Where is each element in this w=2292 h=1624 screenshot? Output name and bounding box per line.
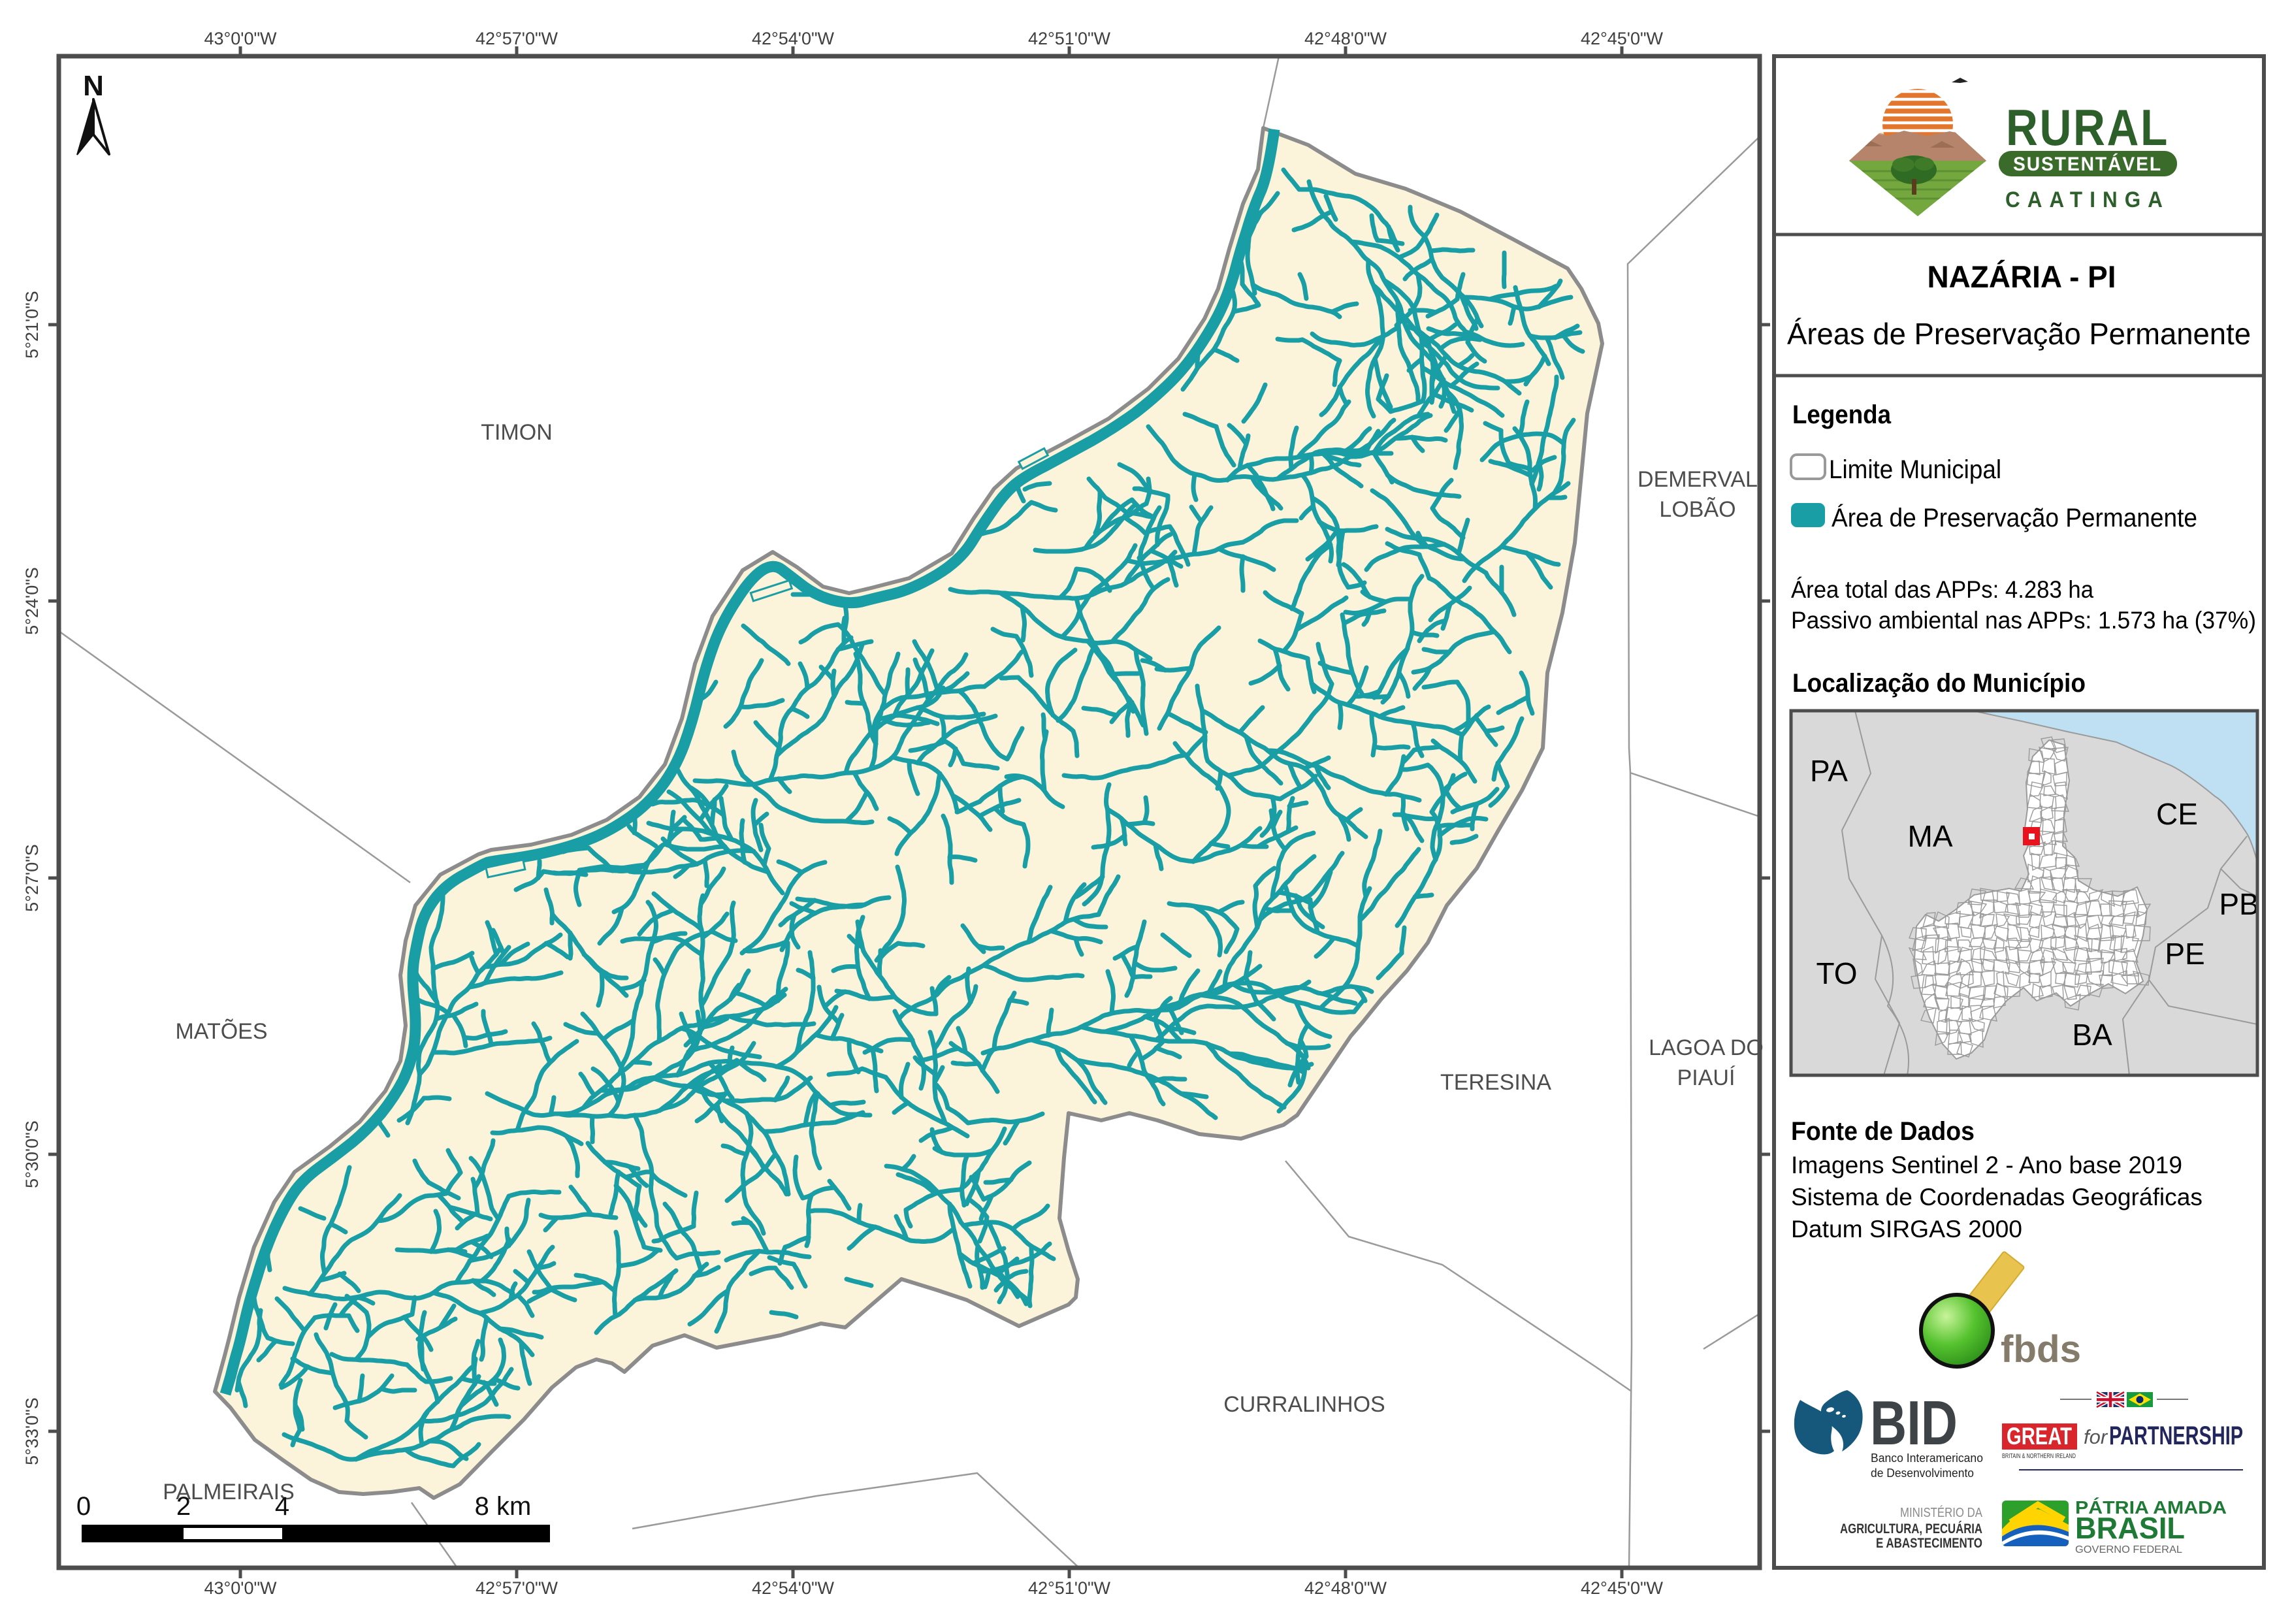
svg-text:Área de Preservação Permanente: Área de Preservação Permanente — [1832, 503, 2197, 532]
svg-text:MATÕES: MATÕES — [175, 1019, 267, 1044]
svg-text:GREAT: GREAT — [2007, 1423, 2072, 1450]
svg-text:MA: MA — [1908, 819, 1953, 853]
svg-text:CAATINGA: CAATINGA — [2005, 187, 2170, 212]
svg-text:NAZÁRIA - PI: NAZÁRIA - PI — [1928, 259, 2116, 294]
svg-text:TIMON: TIMON — [481, 420, 553, 445]
svg-text:Passivo ambiental nas APPs: 1.: Passivo ambiental nas APPs: 1.573 ha (37… — [1791, 607, 2256, 634]
svg-text:E ABASTECIMENTO: E ABASTECIMENTO — [1876, 1536, 1982, 1551]
svg-text:5°30'0"S: 5°30'0"S — [22, 1120, 42, 1188]
svg-text:fbds: fbds — [2001, 1328, 2081, 1371]
svg-text:Datum SIRGAS 2000: Datum SIRGAS 2000 — [1791, 1216, 2022, 1242]
svg-text:LAGOA DO: LAGOA DO — [1649, 1035, 1764, 1060]
svg-text:CE: CE — [2156, 797, 2198, 831]
svg-text:Fonte de Dados: Fonte de Dados — [1791, 1117, 1975, 1146]
svg-text:Legenda: Legenda — [1792, 400, 1892, 429]
svg-text:LOBÃO: LOBÃO — [1659, 497, 1735, 522]
svg-text:BRASIL: BRASIL — [2075, 1511, 2185, 1545]
svg-text:42°54'0"W: 42°54'0"W — [752, 1578, 835, 1598]
svg-text:BID: BID — [1870, 1388, 1958, 1458]
svg-text:BRITAIN & NORTHERN IRELAND: BRITAIN & NORTHERN IRELAND — [2002, 1453, 2076, 1460]
svg-text:43°0'0"W: 43°0'0"W — [204, 29, 277, 48]
svg-text:2: 2 — [176, 1492, 191, 1521]
svg-text:0: 0 — [76, 1492, 91, 1521]
svg-text:PARTNERSHIP: PARTNERSHIP — [2109, 1421, 2243, 1450]
svg-text:DEMERVAL: DEMERVAL — [1638, 467, 1758, 492]
svg-text:TERESINA: TERESINA — [1440, 1070, 1551, 1095]
svg-text:42°45'0"W: 42°45'0"W — [1581, 1578, 1664, 1598]
svg-text:5°24'0"S: 5°24'0"S — [22, 567, 42, 635]
svg-text:for: for — [2084, 1425, 2108, 1448]
svg-text:Banco Interamericano: Banco Interamericano — [1871, 1452, 1983, 1465]
svg-text:Localização do Município: Localização do Município — [1792, 669, 2086, 698]
svg-text:42°51'0"W: 42°51'0"W — [1028, 1578, 1111, 1598]
svg-text:42°54'0"W: 42°54'0"W — [752, 29, 835, 48]
svg-text:CURRALINHOS: CURRALINHOS — [1223, 1392, 1385, 1417]
svg-text:MINISTÉRIO DA: MINISTÉRIO DA — [1900, 1505, 1983, 1520]
svg-text:N: N — [83, 70, 104, 102]
svg-text:5°27'0"S: 5°27'0"S — [22, 844, 42, 912]
svg-text:43°0'0"W: 43°0'0"W — [204, 1578, 277, 1598]
svg-text:de Desenvolvimento: de Desenvolvimento — [1871, 1467, 1974, 1480]
svg-text:42°57'0"W: 42°57'0"W — [476, 29, 558, 48]
svg-text:Sistema de Coordenadas Geográf: Sistema de Coordenadas Geográficas — [1791, 1184, 2203, 1210]
svg-text:42°48'0"W: 42°48'0"W — [1304, 1578, 1387, 1598]
svg-text:42°51'0"W: 42°51'0"W — [1028, 29, 1111, 48]
svg-text:Áreas de Preservação Permanent: Áreas de Preservação Permanente — [1787, 317, 2251, 351]
svg-text:PA: PA — [1810, 754, 1848, 788]
svg-text:BA: BA — [2072, 1018, 2112, 1052]
svg-text:42°48'0"W: 42°48'0"W — [1304, 29, 1387, 48]
svg-text:42°57'0"W: 42°57'0"W — [476, 1578, 558, 1598]
svg-text:Limite Municipal: Limite Municipal — [1829, 455, 2001, 484]
svg-text:8 km: 8 km — [475, 1492, 532, 1521]
svg-text:SUSTENTÁVEL: SUSTENTÁVEL — [2013, 153, 2162, 175]
svg-text:TO: TO — [1816, 956, 1857, 990]
svg-text:4: 4 — [275, 1492, 289, 1521]
svg-text:PE: PE — [2165, 937, 2204, 971]
svg-text:PB: PB — [2219, 887, 2259, 921]
svg-text:AGRICULTURA, PECUÁRIA: AGRICULTURA, PECUÁRIA — [1840, 1521, 1982, 1536]
svg-text:RURAL: RURAL — [2006, 99, 2169, 156]
svg-text:Imagens Sentinel 2 - Ano base: Imagens Sentinel 2 - Ano base 2019 — [1791, 1152, 2182, 1178]
svg-text:42°45'0"W: 42°45'0"W — [1581, 29, 1664, 48]
svg-text:GOVERNO FEDERAL: GOVERNO FEDERAL — [2075, 1544, 2182, 1555]
svg-text:PIAUÍ: PIAUÍ — [1677, 1065, 1735, 1090]
svg-text:Área total das APPs: 4.283 ha: Área total das APPs: 4.283 ha — [1791, 576, 2093, 603]
svg-text:5°33'0"S: 5°33'0"S — [22, 1397, 42, 1465]
svg-text:5°21'0"S: 5°21'0"S — [22, 291, 42, 359]
